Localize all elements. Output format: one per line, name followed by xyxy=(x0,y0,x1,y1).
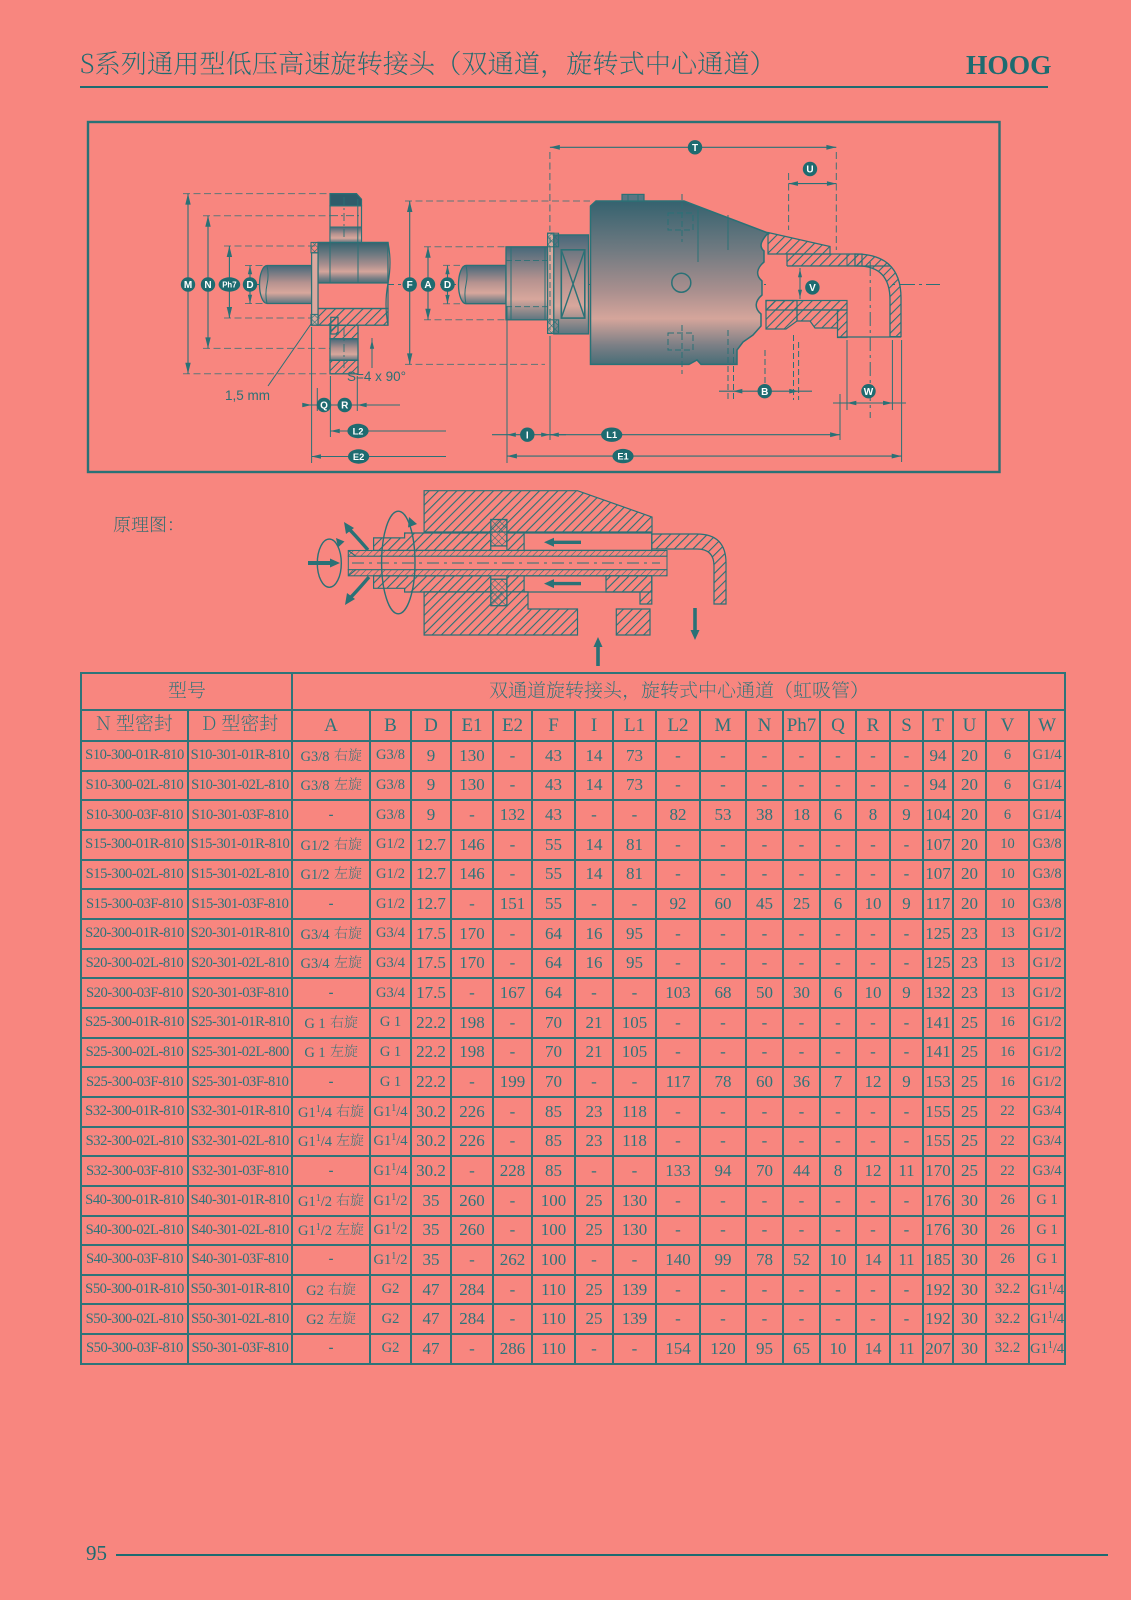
svg-text:1,5 mm: 1,5 mm xyxy=(225,388,270,403)
svg-text:N: N xyxy=(204,280,211,291)
svg-text:D: D xyxy=(444,280,451,291)
svg-text:Q: Q xyxy=(320,401,328,412)
svg-text:E1: E1 xyxy=(617,451,628,461)
svg-text:A: A xyxy=(424,280,431,291)
svg-text:L2: L2 xyxy=(353,426,364,436)
svg-text:W: W xyxy=(864,387,874,398)
svg-text:D: D xyxy=(246,280,253,291)
svg-text:B: B xyxy=(761,387,768,398)
svg-text:T: T xyxy=(692,143,698,154)
svg-text:F: F xyxy=(407,280,413,291)
svg-text:S=4 x 90°: S=4 x 90° xyxy=(347,369,406,384)
svg-text:V: V xyxy=(809,283,816,294)
svg-text:I: I xyxy=(526,430,529,441)
svg-text:R: R xyxy=(341,401,349,412)
svg-text:Ph7: Ph7 xyxy=(222,280,236,289)
svg-text:E2: E2 xyxy=(353,452,364,462)
svg-text:U: U xyxy=(806,165,813,176)
svg-text:L1: L1 xyxy=(606,430,617,440)
svg-text:M: M xyxy=(184,280,192,291)
